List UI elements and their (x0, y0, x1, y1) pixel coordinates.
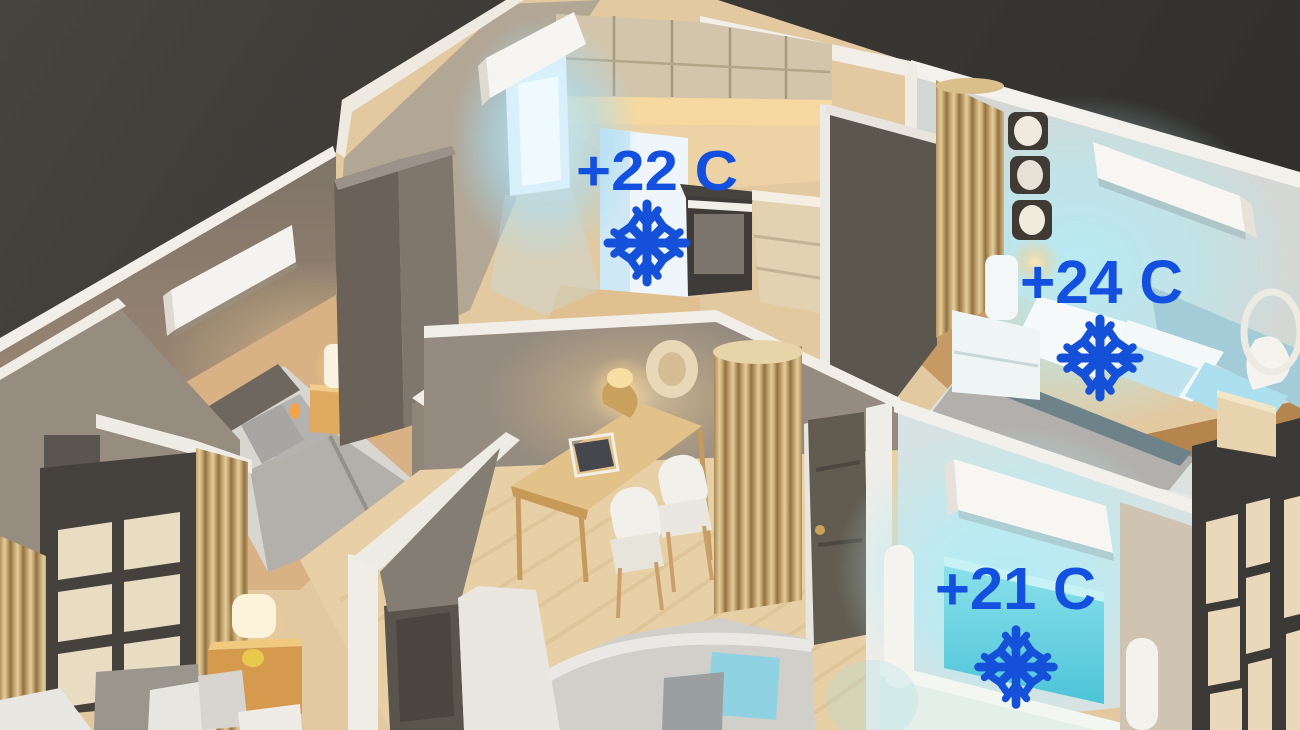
svg-text:+21 C: +21 C (935, 556, 1096, 622)
svg-text:+24 C: +24 C (1020, 248, 1183, 316)
svg-text:+22 C: +22 C (576, 139, 738, 203)
